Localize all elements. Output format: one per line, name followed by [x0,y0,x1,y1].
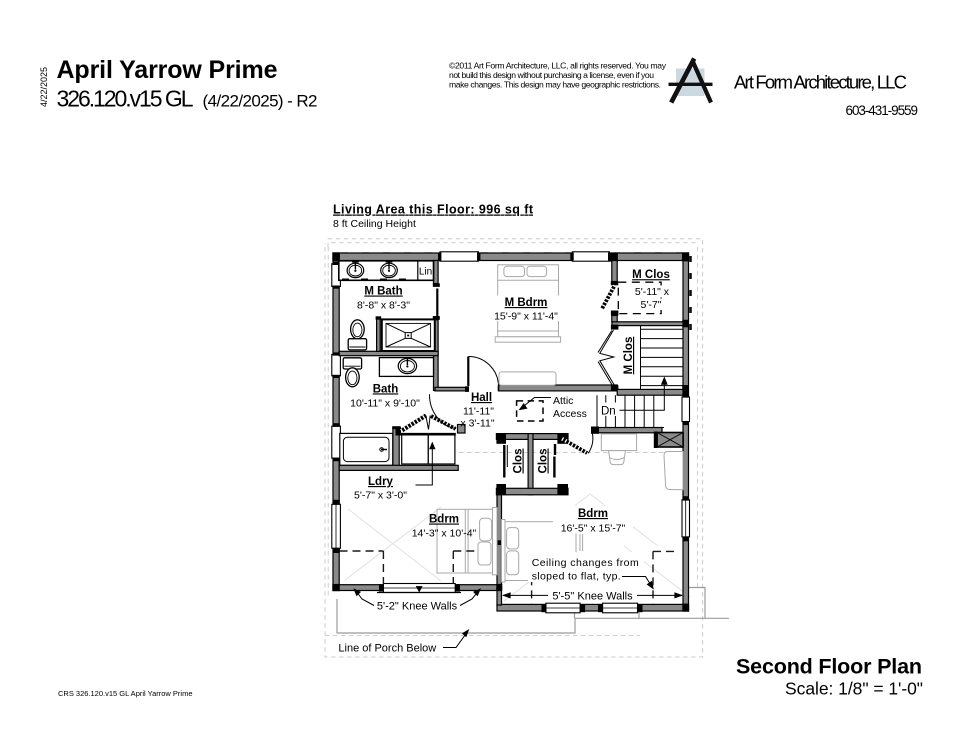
svg-text:Lin: Lin [419,267,432,278]
svg-text:x 3'-11": x 3'-11" [460,418,494,430]
svg-text:make changes. This design may: make changes. This design may have geogr… [449,80,661,90]
svg-text:Art Form Architecture, LLC: Art Form Architecture, LLC [734,72,907,93]
svg-text:Bdrm: Bdrm [578,508,608,520]
svg-text:©2011 Art Form Architecture, L: ©2011 Art Form Architecture, LLC, all ri… [449,61,667,71]
svg-text:Living Area this Floor: 996 sq: Living Area this Floor: 996 sq ft [333,203,534,217]
svg-text:326.120.v15 GL: 326.120.v15 GL [57,86,194,112]
svg-text:Clos: Clos [538,449,550,474]
svg-text:Access: Access [553,408,587,420]
svg-text:8 ft Ceiling Height: 8 ft Ceiling Height [333,218,416,230]
svg-text:5'-7": 5'-7" [641,299,662,311]
svg-text:sloped to flat, typ.: sloped to flat, typ. [532,571,621,583]
svg-text:April Yarrow Prime: April Yarrow Prime [57,56,278,84]
svg-text:5'-11" x: 5'-11" x [635,286,670,298]
svg-text:Line of Porch Below: Line of Porch Below [338,643,436,655]
svg-text:M Bdrm: M Bdrm [505,297,548,309]
svg-text:Clos: Clos [513,449,525,474]
svg-text:Hall: Hall [471,392,492,404]
svg-text:11'-11": 11'-11" [463,406,494,418]
svg-text:CRS 326.120.v15 GL April Yarro: CRS 326.120.v15 GL April Yarrow Prime [58,689,193,698]
svg-text:M Clos: M Clos [623,337,635,375]
svg-text:Attic: Attic [553,395,573,407]
svg-text:15'-9" x 11'-4": 15'-9" x 11'-4" [494,311,558,323]
svg-text:10'-11" x 9'-10": 10'-11" x 9'-10" [350,397,420,409]
svg-text:Ldry: Ldry [368,476,394,488]
svg-text:Bdrm: Bdrm [429,514,459,526]
svg-text:5'-5" Knee Walls: 5'-5" Knee Walls [552,591,633,603]
svg-text:Dn: Dn [601,406,616,418]
svg-text:5'-7" x 3'-0": 5'-7" x 3'-0" [354,489,407,501]
svg-text:M Clos: M Clos [632,269,670,281]
svg-text:14'-3" x 10'-4": 14'-3" x 10'-4" [412,528,477,540]
svg-text:Ceiling changes from: Ceiling changes from [532,557,639,569]
svg-text:8'-8" x 8'-3": 8'-8" x 8'-3" [357,299,410,311]
svg-text:5'-2" Knee Walls: 5'-2" Knee Walls [377,601,458,613]
svg-text:4/22/2025: 4/22/2025 [39,67,49,107]
svg-text:Second Floor Plan: Second Floor Plan [736,655,922,679]
svg-text:not build this design without: not build this design without purchasing… [449,70,654,80]
svg-text:Scale: 1/8" = 1'-0": Scale: 1/8" = 1'-0" [785,679,923,699]
svg-text:M Bath: M Bath [364,286,402,298]
svg-text:603-431-9559: 603-431-9559 [846,103,919,118]
svg-text:Bath: Bath [373,383,399,395]
svg-text:16'-5" x 15'-7": 16'-5" x 15'-7" [561,522,626,534]
svg-text:(4/22/2025) - R2: (4/22/2025) - R2 [203,92,318,111]
